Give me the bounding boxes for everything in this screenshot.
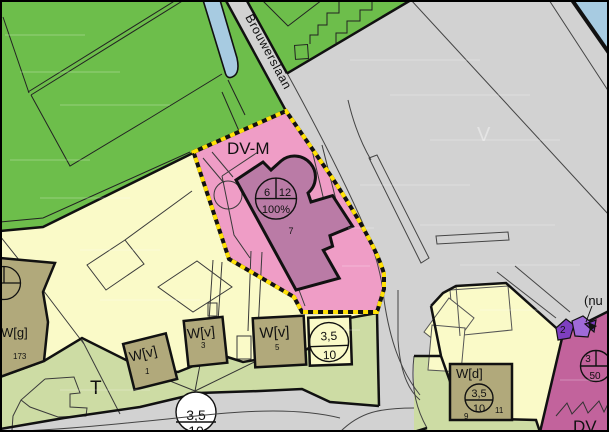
svg-text:W[v]: W[v] — [259, 323, 290, 342]
svg-text:V: V — [477, 124, 491, 146]
svg-text:11: 11 — [495, 406, 504, 415]
svg-text:3,5: 3,5 — [320, 329, 337, 344]
svg-text:(nu: (nu — [584, 293, 603, 308]
svg-text:1: 1 — [145, 367, 150, 376]
svg-text:10: 10 — [323, 348, 337, 362]
svg-text:W[v]: W[v] — [186, 323, 216, 342]
svg-text:9: 9 — [464, 412, 469, 421]
svg-text:3: 3 — [585, 354, 591, 365]
svg-text:12: 12 — [279, 187, 291, 199]
svg-text:6: 6 — [264, 187, 270, 199]
svg-text:W[g]: W[g] — [1, 325, 28, 340]
svg-text:DV: DV — [573, 417, 597, 432]
svg-text:2: 2 — [560, 325, 566, 336]
svg-text:10: 10 — [473, 403, 485, 415]
svg-text:7: 7 — [288, 226, 293, 236]
svg-text:3: 3 — [201, 341, 206, 350]
svg-text:173: 173 — [13, 352, 27, 361]
svg-text:100%: 100% — [262, 204, 290, 216]
svg-text:W[d]: W[d] — [456, 366, 483, 381]
svg-text:T: T — [90, 378, 102, 399]
svg-text:3,5: 3,5 — [471, 388, 486, 400]
svg-text:DV-M: DV-M — [227, 139, 270, 158]
svg-text:5: 5 — [275, 343, 280, 352]
